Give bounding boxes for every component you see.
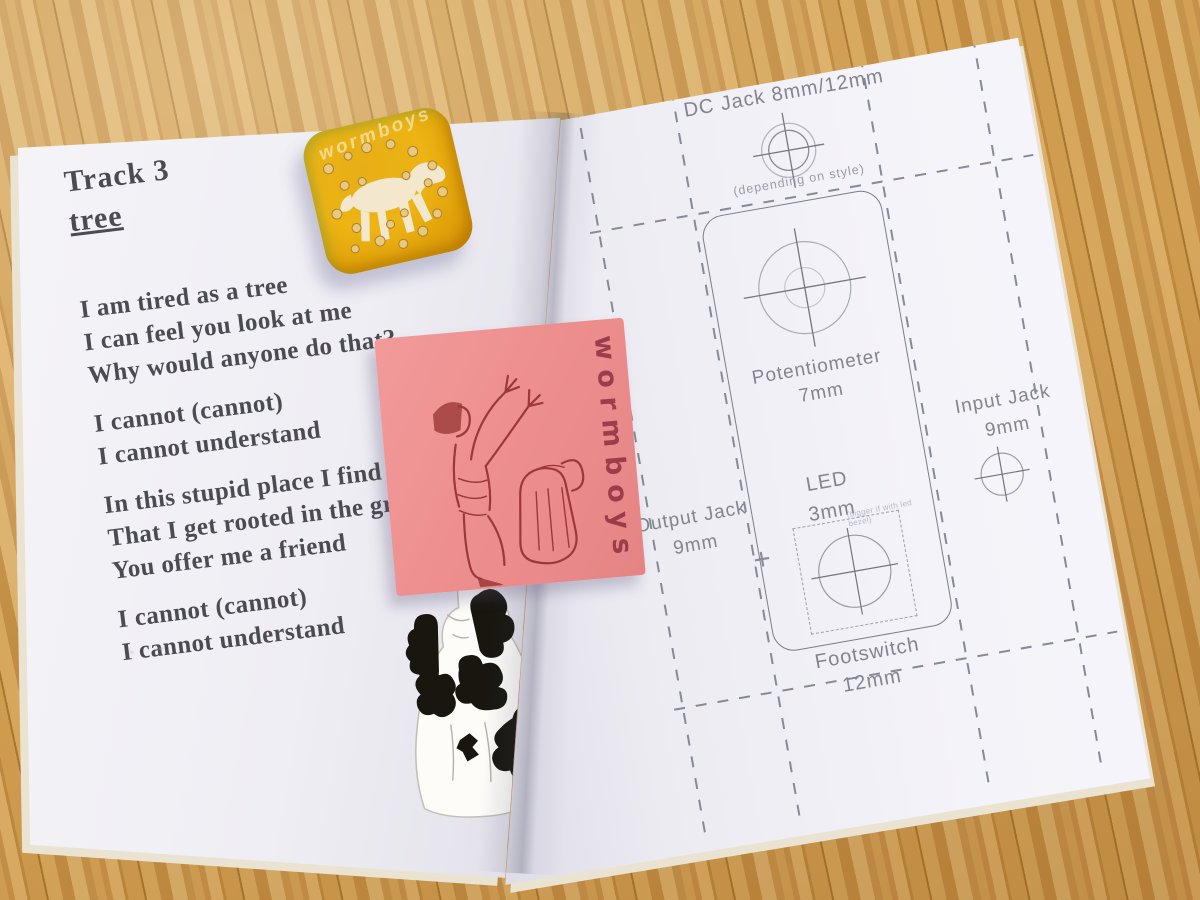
footswitch-crosshair xyxy=(804,520,906,622)
input-jack-crosshair xyxy=(970,442,1035,507)
sticky-note: wormboys xyxy=(374,318,646,597)
wooden-table-background: Track 3 tree I am tired as a tree I can … xyxy=(0,0,1200,900)
track-title: tree xyxy=(67,196,125,242)
dancer-sketch xyxy=(383,326,614,593)
potentiometer-crosshair xyxy=(733,216,877,360)
drilling-template: DC Jack 8mm/12mm (depending on style) Po… xyxy=(568,30,1140,837)
